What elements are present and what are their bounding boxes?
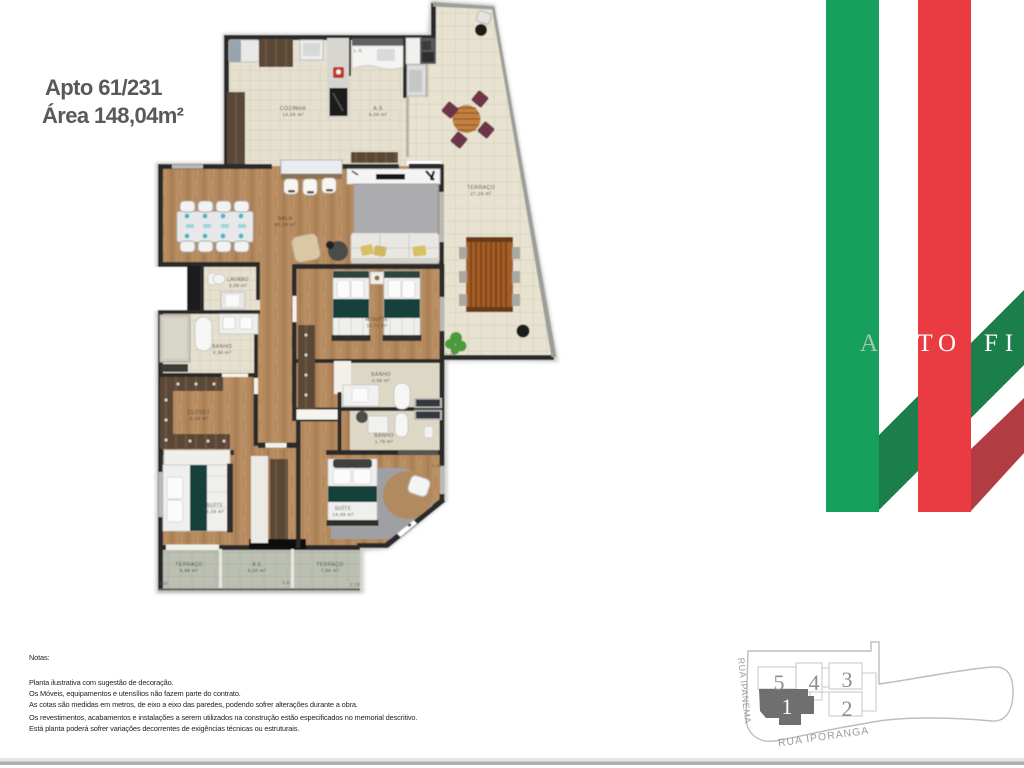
svg-text:2,18: 2,18 xyxy=(350,582,360,587)
svg-text:M.SUÍTE: M.SUÍTE xyxy=(365,316,388,323)
svg-text:Notas:: Notas: xyxy=(29,653,50,662)
svg-text:11,71 m²: 11,71 m² xyxy=(367,323,388,328)
svg-text:F: F xyxy=(984,330,998,357)
svg-text:27,26 m²: 27,26 m² xyxy=(470,191,491,196)
svg-text:9,29 m²: 9,29 m² xyxy=(206,509,224,514)
svg-text:I: I xyxy=(1005,330,1013,357)
svg-text:0,97: 0,97 xyxy=(159,581,169,586)
svg-text:T: T xyxy=(917,330,932,357)
svg-text:O: O xyxy=(938,330,956,357)
svg-text:Os revestimentos, acabamentos: Os revestimentos, acabamentos e instalaç… xyxy=(29,713,417,722)
svg-text:Apto 61/231: Apto 61/231 xyxy=(45,75,162,100)
svg-text:2,8: 2,8 xyxy=(282,580,289,585)
svg-text:1,79 m²: 1,79 m² xyxy=(375,439,393,444)
svg-text:7,95 m²: 7,95 m² xyxy=(321,568,339,573)
svg-text:L: L xyxy=(889,330,904,357)
svg-text:Área 148,04m²: Área 148,04m² xyxy=(42,103,184,128)
svg-text:14,49 m²: 14,49 m² xyxy=(332,512,353,517)
svg-text:30,16 m²: 30,16 m² xyxy=(274,222,295,227)
svg-text:SUÍTE: SUÍTE xyxy=(335,505,352,512)
svg-text:5,05 m²: 5,05 m² xyxy=(369,112,387,117)
svg-text:14,59 m²: 14,59 m² xyxy=(282,112,303,117)
svg-text:1: 1 xyxy=(782,694,793,719)
svg-text:Planta ilustrativa com sugestã: Planta ilustrativa com sugestão de decor… xyxy=(29,678,174,687)
svg-text:2: 2 xyxy=(842,696,853,721)
svg-text:Os Móveis, equipamentos e uten: Os Móveis, equipamentos e utensílios não… xyxy=(29,689,241,698)
svg-text:Está planta poderá sofrer vari: Está planta poderá sofrer variações deco… xyxy=(29,724,299,733)
svg-text:As cotas são medidas em metros: As cotas são medidas em metros, de eixo … xyxy=(29,700,358,709)
svg-text:2,49: 2,49 xyxy=(432,463,442,468)
svg-text:4,30 m²: 4,30 m² xyxy=(213,350,231,355)
svg-text:2,49: 2,49 xyxy=(445,352,455,357)
svg-text:5,46 m²: 5,46 m² xyxy=(190,416,208,421)
svg-text:5,98 m²: 5,98 m² xyxy=(180,568,198,573)
svg-text:3: 3 xyxy=(842,667,853,692)
svg-text:6,00 m²: 6,00 m² xyxy=(248,568,266,573)
svg-text:4: 4 xyxy=(809,670,820,695)
svg-text:4,06 m²: 4,06 m² xyxy=(372,378,390,383)
svg-text:SUÍTE: SUÍTE xyxy=(207,502,224,509)
svg-text:A: A xyxy=(860,330,878,357)
svg-text:5: 5 xyxy=(774,670,785,695)
svg-text:L.G: L.G xyxy=(354,48,363,53)
svg-text:3,08 m²: 3,08 m² xyxy=(229,283,247,288)
